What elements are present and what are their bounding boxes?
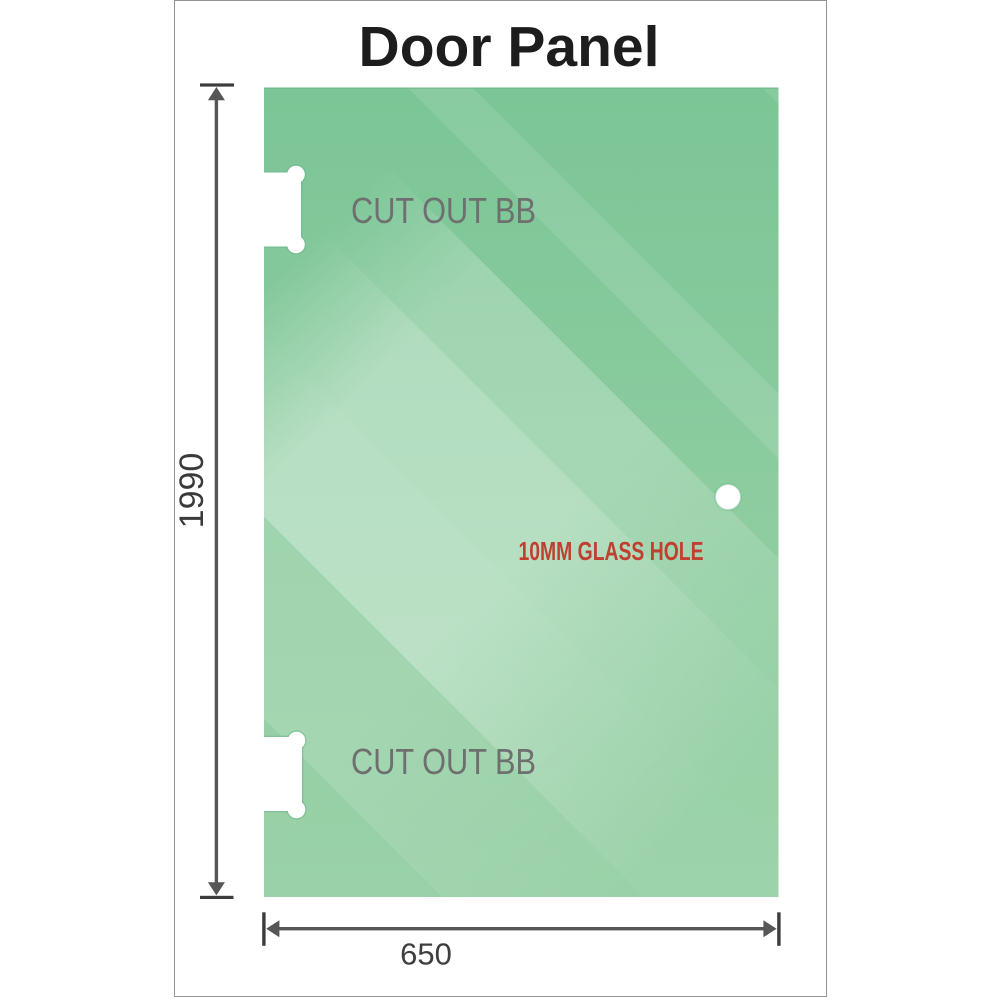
svg-text:650: 650 bbox=[400, 937, 452, 972]
svg-text:CUT OUT BB: CUT OUT BB bbox=[351, 741, 536, 782]
svg-text:CUT OUT BB: CUT OUT BB bbox=[351, 190, 536, 231]
svg-text:10MM GLASS HOLE: 10MM GLASS HOLE bbox=[519, 536, 704, 566]
svg-text:Door Panel: Door Panel bbox=[359, 15, 660, 79]
svg-text:1990: 1990 bbox=[173, 453, 211, 529]
